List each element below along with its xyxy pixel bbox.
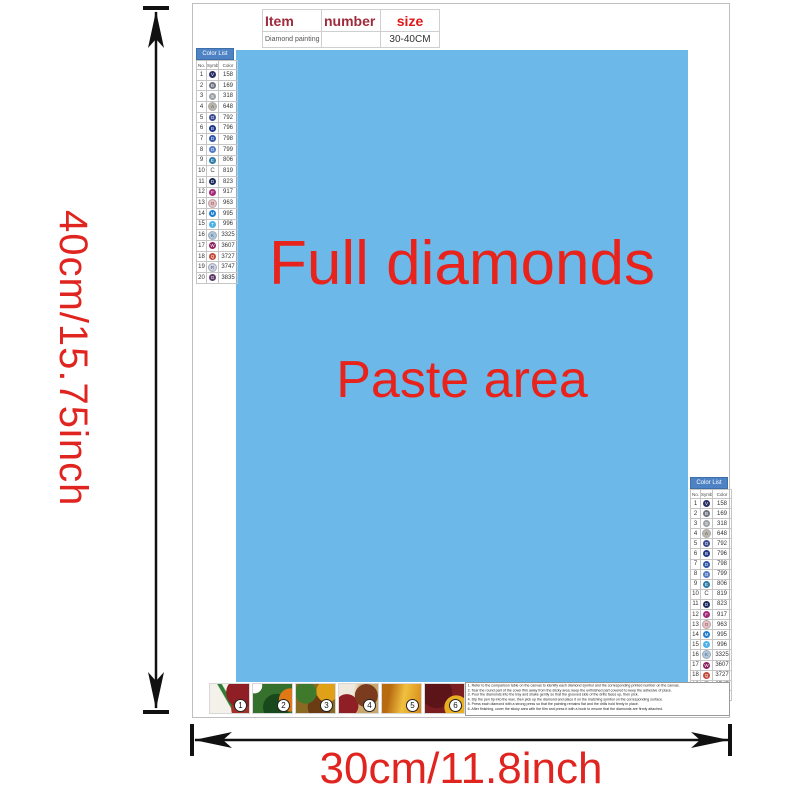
color-row-796: 6B796 [197,123,238,134]
color-row-no: 16 [197,230,207,241]
size-header: size [381,10,440,32]
color-row-code: 648 [713,529,732,539]
diamond-color-dot: Q [703,672,710,679]
color-row-996: 15T996 [691,640,732,650]
color-row-code: 318 [713,519,732,529]
diamond-symbol: C [704,591,708,597]
color-row-symbol: C [701,589,713,599]
color-row-no: 8 [691,569,701,579]
color-row-code: 819 [713,589,732,599]
canvas-sheet: Item number size Diamond painting 30-40C… [192,3,730,718]
diamond-color-dot: W [703,662,710,669]
col-symbol: Symbol [207,61,219,70]
color-row-symbol: W [701,660,713,670]
color-row-code: 823 [219,176,238,187]
color-row-798: 7D798 [691,559,732,569]
size-value: 30-40CM [381,32,440,48]
color-row-648: 4A648 [691,529,732,539]
color-row-code: 3607 [713,660,732,670]
diamond-color-dot: O [703,540,710,547]
paste-area: Full diamonds Paste area [236,50,688,682]
color-row-3835: 20G3835 [197,273,238,284]
color-row-symbol: G [207,273,219,284]
color-row-code: 963 [713,620,732,630]
number-header: number [322,10,381,32]
color-row-823: 11D823 [197,176,238,187]
color-row-code: 917 [713,610,732,620]
color-row-648: 4A648 [197,102,238,113]
diamond-color-dot: T [703,641,710,648]
color-row-code: 3727 [219,251,238,262]
color-row-no: 15 [691,640,701,650]
color-row-symbol: D [207,134,219,145]
diamond-color-dot: E [209,157,216,164]
color-row-symbol: B [207,123,219,134]
color-row-symbol: K [207,230,219,241]
color-row-code: 158 [219,70,238,81]
diamond-color-dot: D [703,561,710,568]
color-row-158: 1V158 [197,70,238,81]
color-row-no: 14 [691,630,701,640]
color-row-symbol: F [701,610,713,620]
color-row-symbol: Q [207,251,219,262]
step-number-badge: 4 [363,699,376,712]
color-row-code: 819 [219,166,238,177]
color-row-no: 2 [691,509,701,519]
paste-area-title-line2: Paste area [236,350,688,410]
item-value: Diamond painting [263,32,322,48]
color-row-symbol: V [207,70,219,81]
color-list-title: Color List [196,48,234,60]
color-row-symbol: A [701,529,713,539]
diamond-symbol: C [210,168,214,174]
color-row-code: 995 [713,630,732,640]
color-row-no: 11 [197,176,207,187]
color-row-code: 169 [219,80,238,91]
color-row-799: 8O799 [197,144,238,155]
color-row-3325: 16K3325 [691,650,732,660]
step-thumbnail-5: 5 [381,683,422,714]
diamond-color-dot: K [208,231,217,240]
height-dimension-arrow [139,2,173,718]
color-row-no: 1 [691,499,701,509]
instruction-line: 6. After finishing, cover the sticky are… [468,707,730,712]
diamond-color-dot: E [703,581,710,588]
diamond-color-dot: S [703,520,710,527]
color-row-no: 9 [691,579,701,589]
color-row-code: 917 [219,187,238,198]
step-thumbnail-6: 6 [424,683,465,714]
color-row-symbol: W [207,241,219,252]
color-row-code: 799 [713,569,732,579]
color-row-no: 12 [197,187,207,198]
color-list-right: Color List No. Symbol Color 1V1582B1693S… [690,477,728,701]
diamond-color-dot: D [209,135,216,142]
diamond-color-dot: D [209,178,216,185]
color-row-3747: 19R3747 [197,262,238,273]
color-row-823: 11D823 [691,599,732,609]
color-row-318: 3S318 [691,519,732,529]
color-row-799: 8O799 [691,569,732,579]
color-row-996: 15T996 [197,219,238,230]
diamond-color-dot: M [209,210,216,217]
diamond-color-dot: T [209,221,216,228]
color-row-no: 7 [691,559,701,569]
color-row-symbol: M [701,630,713,640]
color-row-819: 10C819 [197,166,238,177]
color-row-symbol: E [701,579,713,589]
color-row-code: 648 [219,102,238,113]
diamond-color-dot: D [703,601,710,608]
diamond-color-dot: V [703,500,710,507]
color-row-symbol: B [701,549,713,559]
color-row-no: 1 [197,70,207,81]
color-row-995: 14M995 [691,630,732,640]
color-row-code: 792 [713,539,732,549]
color-row-no: 20 [197,273,207,284]
color-row-code: 3727 [713,670,732,680]
step-thumbnails: 1 2 3 4 5 6 [209,683,465,714]
diamond-color-dot: B [703,510,710,517]
color-row-no: 8 [197,144,207,155]
color-row-796: 6B796 [691,549,732,559]
color-row-no: 6 [197,123,207,134]
color-row-no: 18 [197,251,207,262]
color-row-no: 12 [691,610,701,620]
color-list-left: Color List No. Symbol Color 1V1582B1693S… [196,48,234,284]
diamond-color-dot: K [702,650,711,659]
color-row-code: 158 [713,499,732,509]
diamond-color-dot: R [208,263,217,272]
color-row-318: 3S318 [197,91,238,102]
step-thumbnail-4: 4 [338,683,379,714]
color-row-963: 13O963 [197,198,238,209]
color-row-no: 5 [691,539,701,549]
diamond-color-dot: G [209,274,216,281]
height-dimension-label: 40cm/15.75inch [50,210,95,550]
color-list-header-row: No. Symbol Color [691,490,732,499]
color-row-no: 10 [691,589,701,599]
col-color: Color [219,61,238,70]
color-row-symbol: A [207,102,219,113]
color-row-symbol: O [701,620,713,630]
color-row-no: 2 [197,80,207,91]
number-value [322,32,381,48]
item-table-header-row: Item number size [263,10,440,32]
color-row-symbol: E [207,155,219,166]
step-number-badge: 6 [449,699,462,712]
step-number-badge: 3 [320,699,333,712]
color-row-code: 318 [219,91,238,102]
color-row-code: 792 [219,112,238,123]
diamond-color-dot: O [209,146,216,153]
color-row-no: 17 [691,660,701,670]
color-row-symbol: S [701,519,713,529]
col-no: No. [197,61,207,70]
diamond-color-dot: M [703,631,710,638]
color-row-no: 19 [197,262,207,273]
step-thumbnail-2: 2 [252,683,293,714]
diamond-color-dot: F [703,611,710,618]
step-number-badge: 5 [406,699,419,712]
diamond-color-dot: A [208,102,217,111]
color-row-code: 823 [713,599,732,609]
color-row-symbol: T [701,640,713,650]
color-row-symbol: O [207,144,219,155]
diamond-color-dot: B [703,550,710,557]
color-row-no: 11 [691,599,701,609]
color-row-symbol: O [701,539,713,549]
color-row-963: 13O963 [691,620,732,630]
color-row-819: 10C819 [691,589,732,599]
col-color: Color [713,490,732,499]
color-row-917: 12F917 [197,187,238,198]
color-row-symbol: O [207,112,219,123]
color-row-code: 806 [713,579,732,589]
color-row-792: 5O792 [197,112,238,123]
step-number-badge: 1 [234,699,247,712]
color-row-3607: 17W3607 [691,660,732,670]
color-row-symbol: B [207,80,219,91]
color-row-code: 995 [219,208,238,219]
diamond-color-dot: A [702,529,711,538]
item-header: Item [263,10,322,32]
color-row-no: 14 [197,208,207,219]
color-row-169: 2B169 [691,509,732,519]
color-row-symbol: O [207,198,219,209]
instructions-text: 1. Refer to the comparison table on the … [466,683,730,712]
color-row-code: 806 [219,155,238,166]
col-no: No. [691,490,701,499]
diamond-color-dot: V [209,71,216,78]
diamond-color-dot: O [208,199,217,208]
item-table-data-row: Diamond painting 30-40CM [263,32,440,48]
color-list-title: Color List [690,477,728,489]
color-row-code: 799 [219,144,238,155]
color-list-table: No. Symbol Color 1V1582B1693S3184A6485O7… [196,60,238,284]
diamond-color-dot: W [209,242,216,249]
color-row-code: 963 [219,198,238,209]
color-row-no: 3 [691,519,701,529]
diamond-color-dot: F [209,189,216,196]
color-row-symbol: T [207,219,219,230]
color-row-code: 996 [219,219,238,230]
instructions-box: 1. Refer to the comparison table on the … [465,682,730,716]
color-row-code: 3325 [219,230,238,241]
diamond-color-dot: S [209,93,216,100]
color-row-798: 7D798 [197,134,238,145]
color-row-no: 6 [691,549,701,559]
color-row-806: 9E806 [691,579,732,589]
color-row-3727: 18Q3727 [197,251,238,262]
color-row-806: 9E806 [197,155,238,166]
color-row-code: 3325 [713,650,732,660]
color-row-no: 4 [197,102,207,113]
color-row-symbol: D [701,599,713,609]
color-row-code: 169 [713,509,732,519]
width-dimension-label: 30cm/11.8inch [192,744,730,794]
color-row-3727: 18Q3727 [691,670,732,680]
color-row-symbol: V [701,499,713,509]
color-row-no: 4 [691,529,701,539]
color-row-no: 9 [197,155,207,166]
color-row-symbol: F [207,187,219,198]
diamond-color-dot: O [209,114,216,121]
color-row-symbol: S [207,91,219,102]
color-row-symbol: D [701,559,713,569]
diamond-color-dot: B [209,125,216,132]
color-row-no: 17 [197,241,207,252]
color-row-code: 796 [713,549,732,559]
color-row-no: 10 [197,166,207,177]
diamond-color-dot: O [703,571,710,578]
diamond-color-dot: B [209,82,216,89]
product-image: 40cm/15.75inch Item number size Diamond … [0,0,800,800]
color-row-symbol: C [207,166,219,177]
color-row-symbol: K [701,650,713,660]
paste-area-title-line1: Full diamonds [236,228,688,299]
color-row-code: 3607 [219,241,238,252]
color-row-158: 1V158 [691,499,732,509]
color-row-792: 5O792 [691,539,732,549]
color-row-917: 12F917 [691,610,732,620]
color-row-995: 14M995 [197,208,238,219]
color-list-header-row: No. Symbol Color [197,61,238,70]
color-row-no: 13 [691,620,701,630]
color-row-symbol: O [701,569,713,579]
step-number-badge: 2 [277,699,290,712]
color-row-symbol: R [207,262,219,273]
color-row-code: 996 [713,640,732,650]
color-row-code: 798 [713,559,732,569]
color-row-no: 13 [197,198,207,209]
diamond-color-dot: Q [209,253,216,260]
color-row-3607: 17W3607 [197,241,238,252]
color-row-3325: 16K3325 [197,230,238,241]
color-row-no: 3 [197,91,207,102]
color-row-no: 15 [197,219,207,230]
col-symbol: Symbol [701,490,713,499]
step-thumbnail-1: 1 [209,683,250,714]
color-row-no: 16 [691,650,701,660]
color-row-169: 2B169 [197,80,238,91]
diamond-color-dot: O [702,620,711,629]
color-row-code: 796 [219,123,238,134]
color-row-symbol: B [701,509,713,519]
step-thumbnail-3: 3 [295,683,336,714]
color-list-table: No. Symbol Color 1V1582B1693S3184A6485O7… [690,489,732,701]
color-row-symbol: M [207,208,219,219]
color-row-no: 7 [197,134,207,145]
color-row-no: 18 [691,670,701,680]
color-row-code: 3835 [219,273,238,284]
color-row-symbol: Q [701,670,713,680]
item-number-size-table: Item number size Diamond painting 30-40C… [262,9,440,48]
color-row-symbol: D [207,176,219,187]
color-row-no: 5 [197,112,207,123]
color-row-code: 798 [219,134,238,145]
color-row-code: 3747 [219,262,238,273]
